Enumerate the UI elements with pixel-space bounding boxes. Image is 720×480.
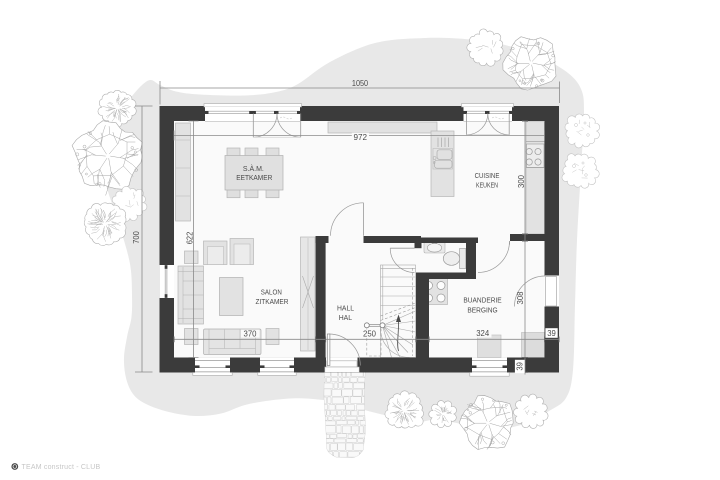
svg-text:622: 622 xyxy=(186,231,195,244)
svg-text:TEAM construct - CLUB: TEAM construct - CLUB xyxy=(22,464,101,471)
svg-text:BERGING: BERGING xyxy=(467,305,498,314)
svg-text:39: 39 xyxy=(547,329,556,338)
svg-text:HAL: HAL xyxy=(339,313,352,322)
svg-text:SALON: SALON xyxy=(261,287,282,296)
svg-text:250: 250 xyxy=(363,329,377,338)
svg-text:39: 39 xyxy=(516,361,525,370)
svg-text:CUISINE: CUISINE xyxy=(475,171,500,180)
svg-text:308: 308 xyxy=(516,291,525,305)
svg-text:370: 370 xyxy=(244,329,258,338)
svg-text:EETKAMER: EETKAMER xyxy=(236,173,272,182)
svg-text:S.À.M.: S.À.M. xyxy=(243,164,264,173)
svg-text:700: 700 xyxy=(132,231,141,244)
svg-text:ZITKAMER: ZITKAMER xyxy=(256,297,289,306)
svg-text:300: 300 xyxy=(517,174,526,188)
svg-text:972: 972 xyxy=(354,133,368,142)
svg-text:BUANDERIE: BUANDERIE xyxy=(463,296,501,305)
svg-text:HALL: HALL xyxy=(337,303,354,312)
svg-text:1050: 1050 xyxy=(352,79,369,88)
svg-text:KEUKEN: KEUKEN xyxy=(476,181,498,190)
svg-text:324: 324 xyxy=(476,329,490,338)
